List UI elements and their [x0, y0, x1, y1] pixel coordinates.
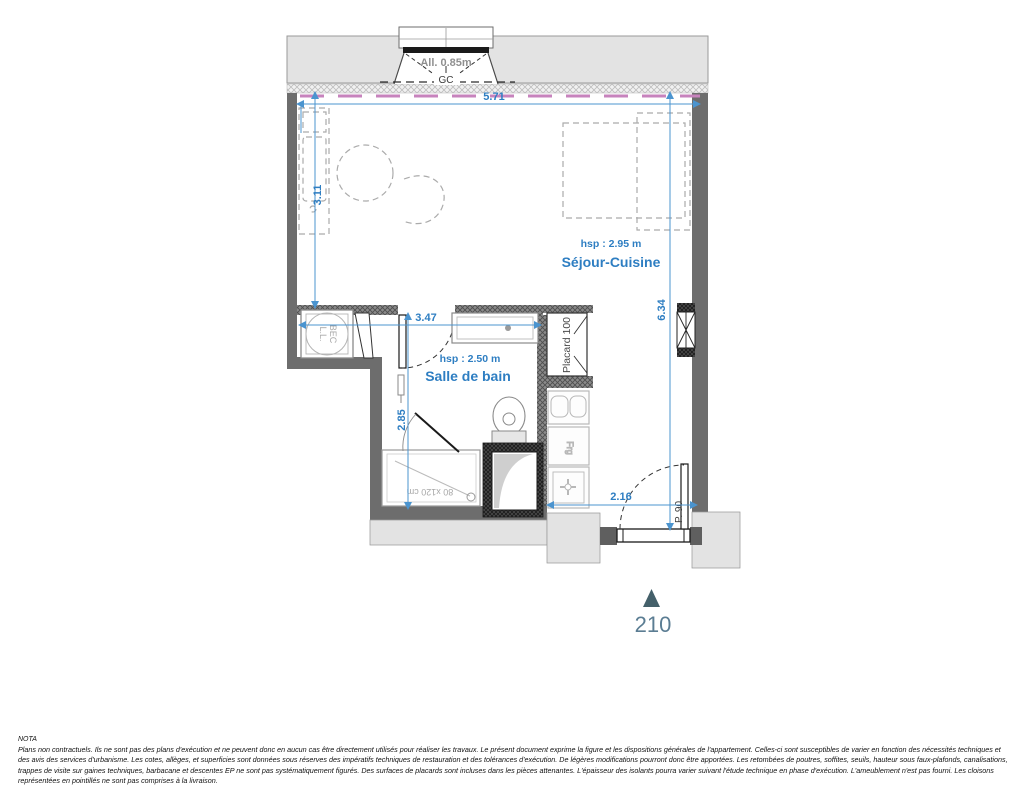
placard: Placard 100: [547, 313, 587, 376]
bed-headboard-outline: [637, 113, 690, 230]
bathroom-door-leaf: [399, 315, 406, 368]
placard-label: Placard 100: [561, 317, 573, 373]
duct-column-top: [677, 303, 695, 312]
shower-size-label: 80 x120 cm: [407, 487, 454, 497]
bottom-facade-wall: [370, 520, 547, 545]
left-wall: [287, 93, 297, 365]
dim-right-value: 6.34: [656, 298, 668, 320]
placard-bottom-wall: [543, 376, 593, 388]
fridge-label: Frg: [565, 441, 575, 455]
nota-block: NOTA Plans non contractuels. Ils ne sont…: [18, 736, 1010, 787]
vanity-faucet: [505, 325, 511, 331]
round-table: [337, 145, 393, 201]
top-facade-wall: [287, 36, 708, 83]
washing-machine-niche: BEC L.L.: [301, 310, 373, 358]
chair: [403, 176, 444, 224]
floor-plan-page: All. 0.85m GC BEC L.L.: [0, 0, 1030, 800]
sejour-furniture: [299, 108, 690, 234]
towel-radiator: [398, 375, 404, 395]
shower-screen: [415, 413, 459, 452]
sejour-ceiling-height-label: hsp : 2.95 m: [581, 238, 642, 250]
dim-bath-height-value: 2.85: [396, 409, 408, 430]
gc-label: GC: [439, 75, 454, 86]
sejour-labels: hsp : 2.95 m Séjour-Cuisine: [562, 238, 661, 270]
unit-number: 210: [618, 612, 688, 638]
floor-plan-drawing: All. 0.85m GC BEC L.L.: [0, 0, 1030, 800]
nota-title: NOTA: [18, 736, 1010, 743]
entry-threshold: [617, 529, 690, 542]
nota-body: Plans non contractuels. Ils ne sont pas …: [18, 745, 1010, 787]
north-triangle-icon: [643, 589, 660, 607]
bec-label-line2: L.L.: [318, 326, 328, 341]
dimension-texts: 5.71 3.11 6.34 3.47 2.85 2.16: [312, 91, 668, 503]
entry-left-wall: [547, 513, 600, 563]
window-sill-height-label: All. 0.85m: [420, 57, 472, 69]
dim-left-value: 3.11: [312, 185, 324, 206]
entry-door: P. 90: [617, 464, 690, 542]
toilet-bowl: [493, 397, 525, 435]
entry-door-jamb-right: [690, 527, 702, 545]
entry-door-label: P. 90: [674, 501, 685, 523]
duct-column-bottom: [677, 348, 695, 357]
vanity-counter: [452, 313, 538, 343]
window-frame: [403, 47, 489, 53]
bathroom-left-wall: [370, 357, 382, 512]
right-wall-duct: [677, 303, 695, 357]
cooktop-burner-center: [565, 484, 571, 490]
entry-door-jamb-left: [600, 527, 617, 545]
right-wall: [692, 93, 708, 512]
angled-partition: [355, 313, 373, 358]
bed-outline: [563, 123, 685, 218]
bathroom-ceiling-height-label: hsp : 2.50 m: [440, 353, 501, 365]
sejour-label: Séjour-Cuisine: [562, 254, 661, 270]
dim-entry-value: 2.16: [610, 491, 631, 503]
left-corner-wall: [287, 357, 382, 369]
dim-bath-width-value: 3.47: [415, 312, 436, 324]
placard-top-wall: [543, 305, 593, 313]
bathroom-label: Salle de bain: [425, 368, 511, 384]
dim-top-value: 5.71: [483, 91, 504, 103]
bec-label-line1: BEC: [328, 325, 338, 344]
kitchen-units: Frg: [548, 391, 589, 508]
toilet-base: [492, 431, 526, 443]
